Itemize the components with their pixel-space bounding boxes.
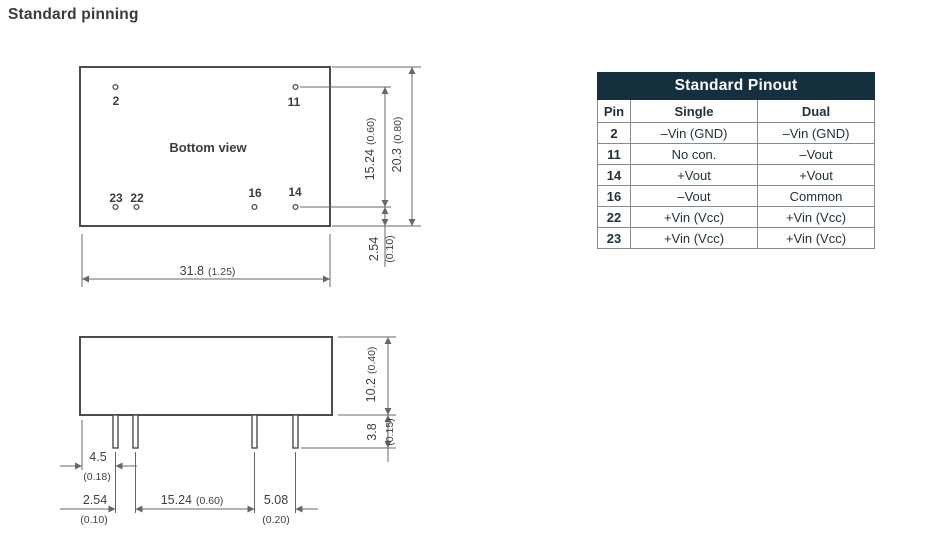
- dual-cell: +Vin (Vcc): [758, 228, 875, 249]
- pin-cell: 23: [598, 228, 631, 249]
- side-view-outline: [80, 337, 332, 415]
- bottom-view-drawing: Bottom view 2 11 23 22 16 14: [80, 67, 421, 287]
- single-cell: –Vin (GND): [631, 123, 758, 144]
- dim-out-pin-gap-mm: 5.08: [264, 493, 288, 507]
- dual-cell: +Vout: [758, 165, 875, 186]
- bottom-view-label: Bottom view: [169, 140, 247, 155]
- pin-23-label: 23: [109, 191, 123, 205]
- pin-cell: 22: [598, 207, 631, 228]
- dim-body-width: 31.8 (1.25): [82, 234, 330, 287]
- column-header-pin: Pin: [598, 100, 631, 123]
- dim-body-height-bv-inch: (0.80): [392, 117, 404, 144]
- dim-pin-pitch-mm: 2.54: [83, 493, 107, 507]
- leg-2: [133, 415, 138, 448]
- dim-body-height-sv-inch: (0.40): [366, 347, 378, 374]
- table-row: 16 –Vout Common: [598, 186, 875, 207]
- pin-14-hole: [293, 205, 298, 210]
- dim-pin1-offset-mm: 4.5: [89, 450, 106, 464]
- pinout-title: Standard Pinout: [598, 73, 875, 100]
- single-cell: +Vout: [631, 165, 758, 186]
- dual-cell: –Vout: [758, 144, 875, 165]
- dim-out-pin-gap-inch: (0.20): [262, 514, 289, 526]
- dim-pin-rows-inch: (0.60): [365, 118, 377, 145]
- single-cell: +Vin (Vcc): [631, 228, 758, 249]
- table-row: 22 +Vin (Vcc) +Vin (Vcc): [598, 207, 875, 228]
- single-cell: –Vout: [631, 186, 758, 207]
- dim-bottom-row: 2.54 (0.10) 15.24 (0.60) 5.08 (0.20): [60, 493, 318, 526]
- pin-cell: 16: [598, 186, 631, 207]
- dual-cell: –Vin (GND): [758, 123, 875, 144]
- single-cell: No con.: [631, 144, 758, 165]
- pin-16-hole: [252, 205, 257, 210]
- pin-2-label: 2: [113, 94, 120, 108]
- dim-body-height-sv: 10.2 (0.40): [364, 337, 388, 415]
- column-header-single: Single: [631, 100, 758, 123]
- leg-1: [113, 415, 118, 448]
- dim-pin-offset-inch: (0.10): [384, 235, 396, 262]
- pin-11-hole: [293, 85, 298, 90]
- dim-pin-length-mm: 3.8: [365, 423, 379, 440]
- pin-11-label: 11: [288, 95, 301, 109]
- dim-pin-offset-mm: 2.54: [367, 237, 381, 261]
- side-view-drawing: 10.2 (0.40) 3.8 (0.15): [60, 337, 396, 526]
- column-header-dual: Dual: [758, 100, 875, 123]
- dim-pin-pitch-inch: (0.10): [80, 514, 107, 526]
- dim-pin-rows-mm: 15.24: [363, 149, 377, 180]
- standard-pinout-table: Standard Pinout Pin Single Dual 2 –Vin (…: [597, 72, 875, 249]
- side-view-legs: [113, 415, 298, 448]
- dim-body-width-inch: (1.25): [208, 266, 235, 278]
- mechanical-drawing: Bottom view 2 11 23 22 16 14: [0, 0, 470, 541]
- table-row: 11 No con. –Vout: [598, 144, 875, 165]
- table-row: 2 –Vin (GND) –Vin (GND): [598, 123, 875, 144]
- pin-2-hole: [113, 85, 118, 90]
- leg-4: [293, 415, 298, 448]
- pin-cell: 14: [598, 165, 631, 186]
- page: Standard pinning Bottom view 2 11 23 2: [0, 0, 926, 541]
- table-row: 14 +Vout +Vout: [598, 165, 875, 186]
- dual-cell: Common: [758, 186, 875, 207]
- dim-pin-length-inch: (0.15): [384, 418, 396, 445]
- table-row: 23 +Vin (Vcc) +Vin (Vcc): [598, 228, 875, 249]
- single-cell: +Vin (Vcc): [631, 207, 758, 228]
- dim-body-width-mm: 31.8: [180, 264, 204, 278]
- dim-body-height-bv: 20.3 (0.80): [390, 67, 412, 226]
- dim-pin-span-inch: (0.60): [196, 495, 223, 507]
- dim-pin-span-mm: 15.24: [161, 493, 192, 507]
- dim-pin-rows: 15.24 (0.60): [363, 87, 385, 207]
- leg-3: [252, 415, 257, 448]
- pinout-title-row: Standard Pinout: [598, 73, 875, 100]
- dim-body-height-sv-mm: 10.2: [364, 378, 378, 402]
- pin-cell: 11: [598, 144, 631, 165]
- pin-22-label: 22: [130, 191, 144, 205]
- dim-pin1-offset-inch: (0.18): [83, 471, 110, 483]
- pin-cell: 2: [598, 123, 631, 144]
- dual-cell: +Vin (Vcc): [758, 207, 875, 228]
- pinout-header-row: Pin Single Dual: [598, 100, 875, 123]
- pin-22-hole: [134, 205, 139, 210]
- pin-16-label: 16: [248, 186, 262, 200]
- dim-pin-length: 3.8 (0.15): [365, 415, 396, 462]
- dim-pin1-offset: 4.5 (0.18): [60, 450, 137, 483]
- pin-23-hole: [113, 205, 118, 210]
- dim-body-height-bv-mm: 20.3: [390, 148, 404, 172]
- dim-pin-offset: 2.54 (0.10): [367, 207, 396, 267]
- pin-14-label: 14: [288, 185, 302, 199]
